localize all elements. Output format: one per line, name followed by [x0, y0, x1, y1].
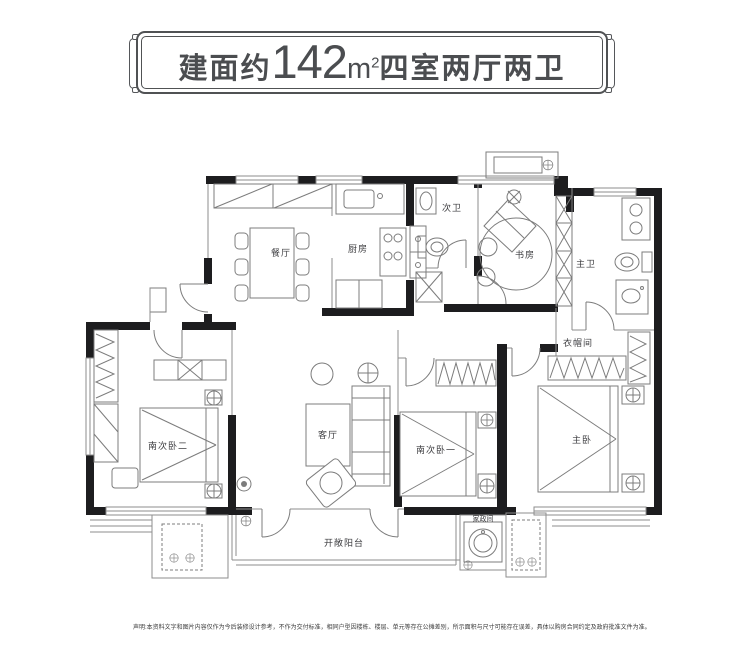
dining-table-icon [235, 228, 309, 301]
ac-platform-top-icon [486, 152, 558, 178]
master-wardrobe-icon [548, 356, 626, 380]
floor-plan-svg: 餐厅 厨房 次卫 书房 主卫 衣帽间 南次卧二 客厅 南次卧一 主卧 家政间 开… [0, 0, 740, 649]
side-table-icon [311, 363, 333, 385]
desk-chair-icon [479, 238, 497, 256]
armchair-icon [305, 457, 357, 508]
bedroom1-door [406, 358, 434, 386]
master-bedroom-door [512, 348, 540, 376]
guest-bath-sink-icon [416, 188, 436, 214]
dining-area [214, 184, 332, 301]
bedroom2-cabinet-icon [94, 404, 118, 462]
bedroom2-bench-icon [112, 468, 138, 488]
washing-machine-icon [464, 522, 502, 562]
window-dining [236, 176, 298, 184]
shower-icon [416, 272, 442, 302]
room-label-closet: 衣帽间 [563, 337, 593, 348]
study-wardrobe-icon [556, 196, 572, 306]
master-bath-counter-icon [622, 198, 650, 240]
desk-icon [484, 200, 536, 252]
bedroom2-door [154, 330, 182, 358]
master-nightstand-bottom-icon [622, 474, 644, 492]
study-area [477, 152, 572, 306]
entry-door [150, 284, 208, 322]
bay-window-right-icon [552, 520, 650, 526]
master-bath-vanity-icon [616, 280, 648, 314]
closet-hatch-icon [628, 332, 650, 384]
bedroom2-area [94, 330, 226, 498]
stove-icon [380, 228, 406, 276]
room-label-master-bath: 主卫 [576, 258, 596, 269]
window-bedroom2 [106, 507, 206, 515]
room-label-living: 客厅 [318, 429, 338, 440]
kitchen-sink-icon [344, 190, 383, 208]
room-label-dining: 餐厅 [271, 247, 291, 258]
window-master-bath [594, 188, 636, 196]
master-nightstand-top-icon [622, 386, 644, 404]
room-label-guest-bath: 次卫 [442, 202, 462, 213]
ac-platform-right-icon [506, 513, 546, 577]
bedroom1-nightstand-icon [478, 412, 496, 428]
bedroom1-dresser-icon [478, 474, 496, 498]
living-area [237, 363, 390, 509]
balcony-door-left [262, 509, 290, 537]
bay-window-left-icon [90, 520, 152, 532]
room-label-kitchen: 厨房 [348, 243, 368, 254]
laundry-drain-icon [464, 561, 472, 569]
balcony-door-right [370, 509, 398, 537]
sofa-icon [352, 386, 390, 486]
bedroom2-nightstand2-icon [205, 484, 222, 498]
floor-plan-page: 建面约142m2四室两厅两卫 [0, 0, 740, 649]
platforms [90, 513, 650, 578]
room-label-laundry: 家政间 [473, 514, 494, 523]
ac-platform-left-icon [152, 515, 228, 578]
room-label-balcony: 开敞阳台 [324, 537, 364, 548]
room-label-study: 书房 [515, 249, 535, 260]
floor-drain-icon [237, 477, 251, 491]
window-kitchen [316, 176, 362, 184]
room-label-master-bedroom: 主卧 [572, 434, 592, 445]
plant-icon [358, 363, 378, 383]
window-master-bedroom [534, 507, 646, 515]
balcony-drain-icon [241, 516, 251, 526]
bedroom1-wardrobe-icon [436, 360, 496, 386]
bedroom2-dresser-icon [154, 360, 226, 380]
disclaimer-text: 声明:本资料文字和图片内容仅作为今后装修设计参考，不作为交付标准，相同户型因楼栋… [133, 622, 633, 631]
kitchen-counter-icon [336, 280, 382, 308]
master-bath-toilet-icon [615, 252, 652, 272]
master-bath-area [615, 198, 652, 314]
window-study [458, 176, 554, 184]
master-bath-door [586, 302, 614, 330]
ceiling-fan-icon [507, 190, 521, 204]
room-label-bedroom2: 南次卧二 [148, 440, 188, 451]
bedroom2-wardrobe-icon [94, 330, 118, 402]
room-label-bedroom1: 南次卧一 [416, 444, 456, 455]
window-bedroom2-left [86, 358, 94, 455]
laundry-area [460, 515, 506, 570]
bedroom2-nightstand-icon [205, 390, 222, 405]
bedroom1-area [400, 360, 496, 498]
